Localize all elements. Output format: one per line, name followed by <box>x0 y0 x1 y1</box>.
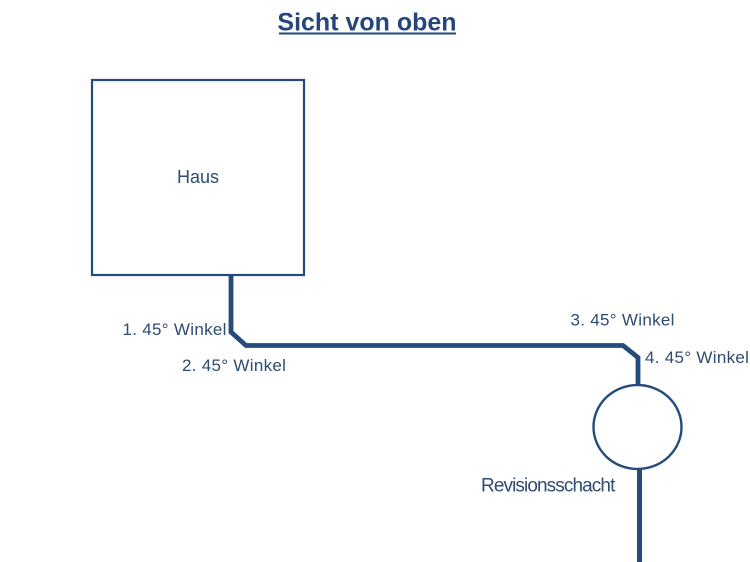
svg-text:4. 45° Winkel: 4. 45° Winkel <box>645 348 749 367</box>
svg-text:1. 45° Winkel: 1. 45° Winkel <box>123 320 227 339</box>
svg-text:Revisionsschacht: Revisionsschacht <box>481 476 616 497</box>
svg-text:2. 45° Winkel: 2. 45° Winkel <box>182 356 286 375</box>
svg-text:3. 45° Winkel: 3. 45° Winkel <box>571 311 675 330</box>
svg-text:Sicht von oben: Sicht von oben <box>277 9 456 37</box>
svg-text:Haus: Haus <box>177 167 219 187</box>
